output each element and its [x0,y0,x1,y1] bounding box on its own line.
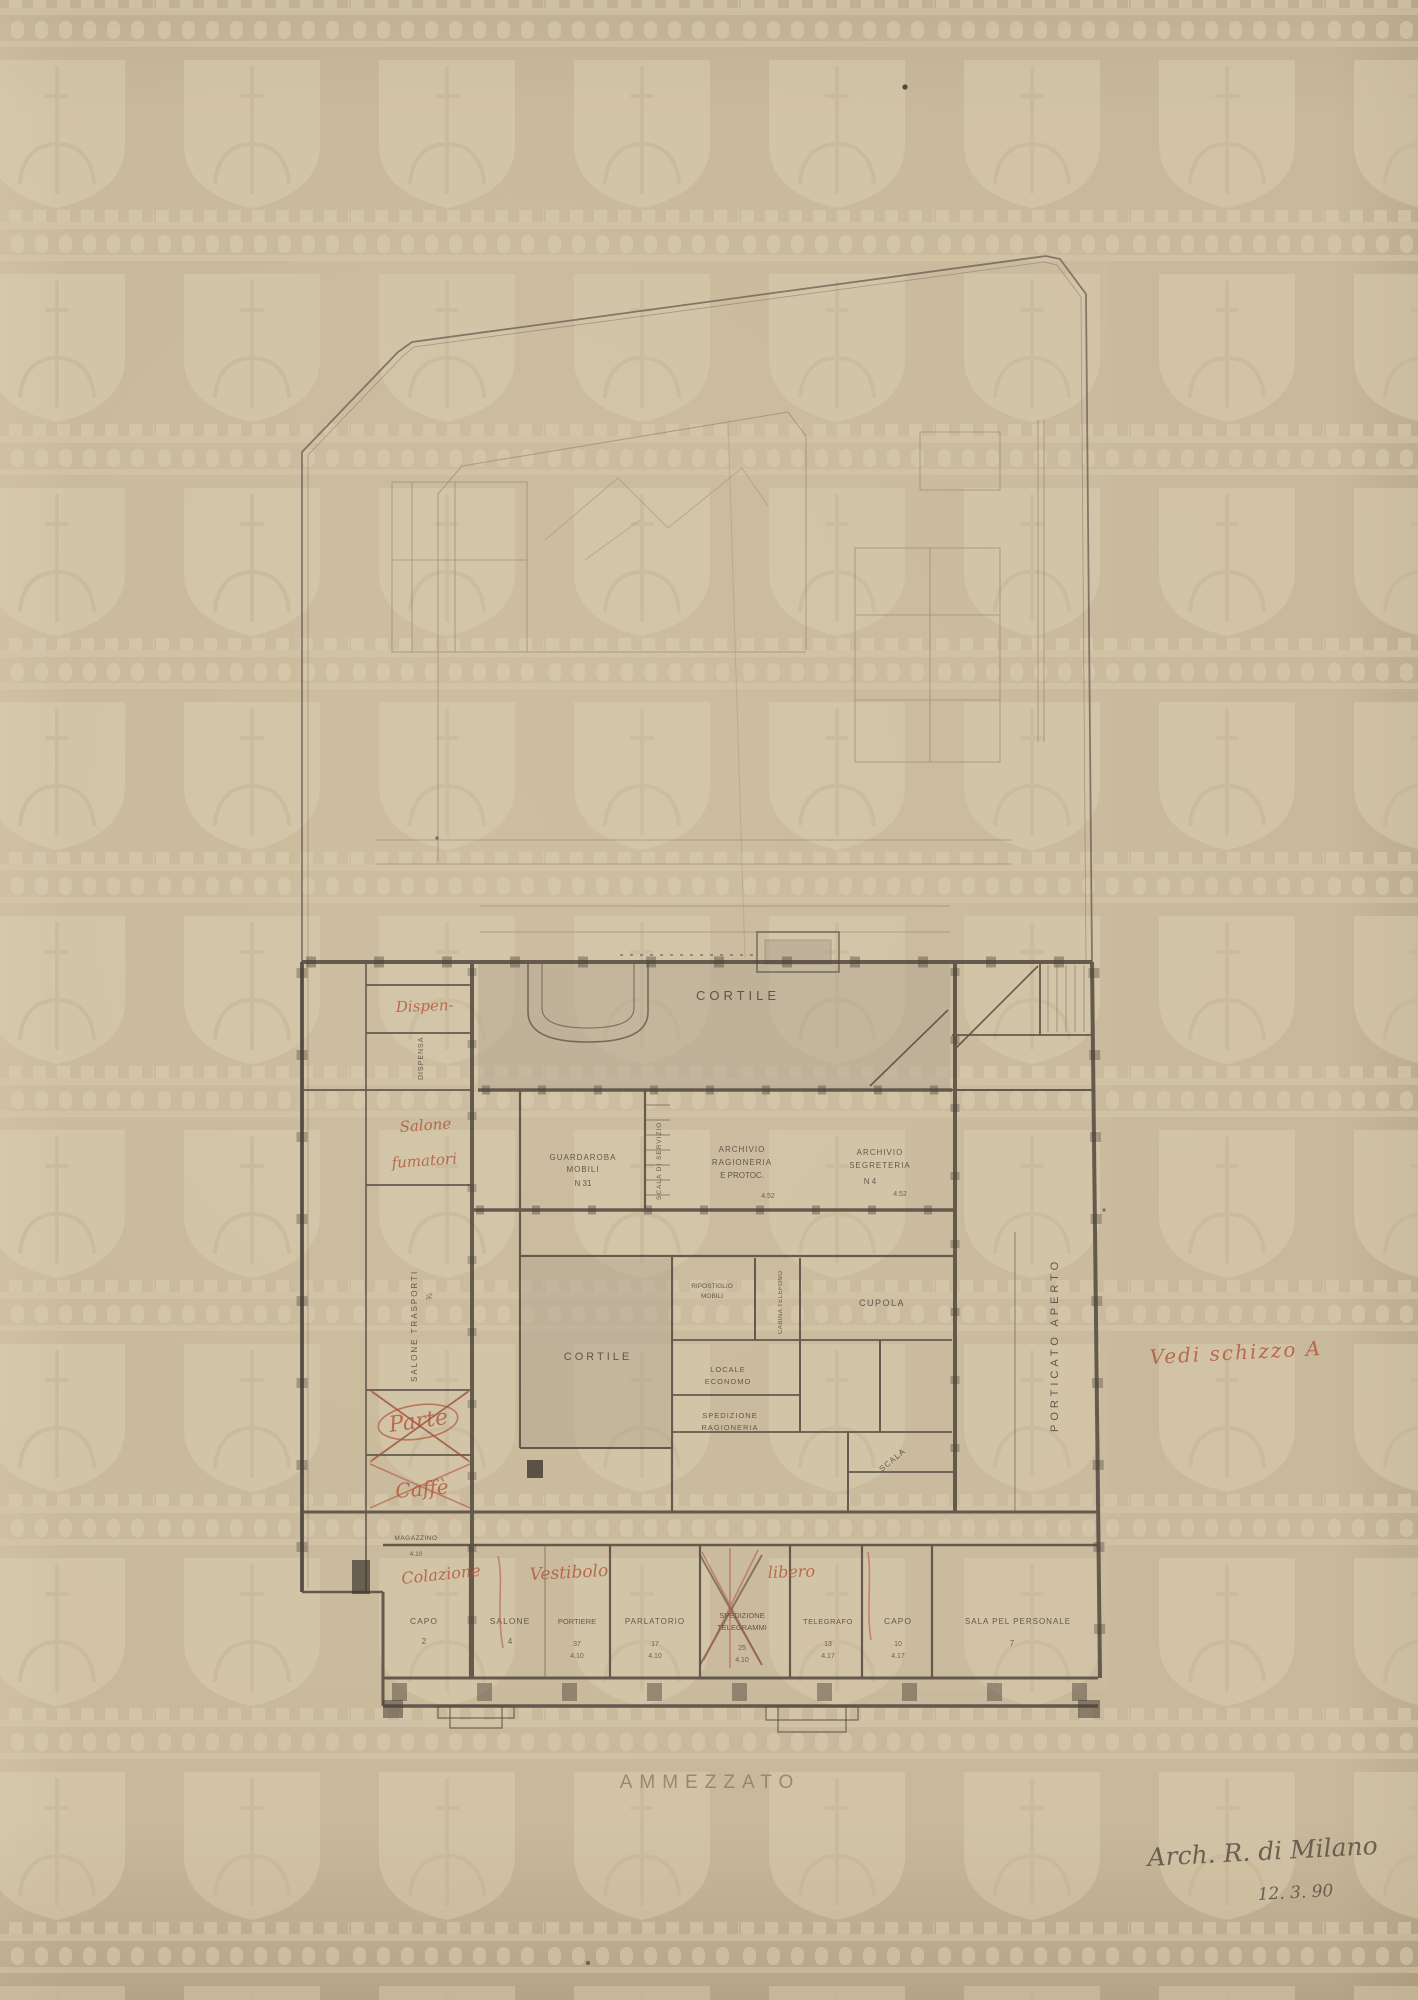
red-vestibolo: Vestibolo [529,1561,609,1585]
label-cupola: CUPOLA [859,1298,905,1308]
label-archivio-rag-1: ARCHIVIO [719,1145,766,1154]
label-salone: SALONE [490,1616,531,1626]
label-archivio-seg-3: N 4 [864,1177,877,1186]
num-portiere-1: 37 [573,1641,581,1648]
num-capo-dx-2: 4.17 [891,1653,905,1660]
num-spedizione-2: 4.10 [735,1657,749,1664]
signature-line2: 12. 3. 90 [1257,1881,1334,1905]
scanned-plan-page: CORTILE CORTILE DISPENSA SALONE TRASPORT… [0,0,1418,2000]
label-cortile-small: CORTILE [564,1351,632,1363]
label-parlatorio: PARLATORIO [625,1617,685,1626]
num-parlatorio-1: 17 [651,1641,659,1648]
label-capo-sx: CAPO [410,1616,438,1626]
num-portiere-2: 4.10 [570,1653,584,1660]
red-dispensa: Dispen- [395,996,454,1016]
label-rag-n: 4.52 [761,1193,775,1200]
label-archivio-rag-2: RAGIONERIA [712,1158,772,1167]
num-capo-sx: 2 [422,1637,427,1646]
num-sala: 7 [1010,1639,1015,1648]
sheet-title: AMMEZZATO [620,1772,801,1793]
label-spedizione-rag-1: SPEDIZIONE [702,1411,757,1420]
label-portiere: PORTIERE [558,1617,596,1626]
label-salone-trasporti: SALONE TRASPORTI [410,1270,419,1382]
label-dispensa: DISPENSA [418,1037,425,1080]
label-guardaroba-2: MOBILI [566,1165,599,1174]
plan-canvas: CORTILE CORTILE DISPENSA SALONE TRASPORT… [0,0,1418,2000]
red-libero: libero [767,1561,815,1582]
label-ripostiglio-1: RIPOSTIGLIO [691,1283,733,1290]
num-spedizione-1: 25 [738,1645,746,1652]
label-magazzino: MAGAZZINO [394,1535,437,1542]
label-capo-dx: CAPO [884,1616,912,1626]
label-guardaroba-3: N 31 [575,1179,592,1188]
label-economo-1: LOCALE [710,1365,746,1374]
label-guardaroba-1: GUARDAROBA [550,1153,617,1162]
num-capo-dx-1: 10 [894,1641,902,1648]
num-salone: 4 [508,1637,513,1646]
red-salone: Salone [399,1114,452,1136]
label-porticato: PORTICATO APERTO [1049,1258,1061,1432]
label-sala-personale: SALA PEL PERSONALE [965,1617,1071,1626]
label-cabina-telefono: CABINA TELEFONO [778,1271,784,1334]
label-spedizione-rag-2: RAGIONERIA [701,1423,758,1432]
num-telegrafo-2: 4.17 [821,1653,835,1660]
label-archivio-seg-2: SEGRETERIA [849,1161,911,1170]
label-magazzino-n: 4.10 [410,1551,423,1558]
label-telegrafo: TELEGRAFO [803,1617,853,1626]
num-telegrafo-1: 13 [824,1641,832,1648]
label-cortile-main: CORTILE [696,988,780,1003]
label-seg-n: 4.52 [893,1191,907,1198]
label-archivio-seg-1: ARCHIVIO [857,1148,904,1157]
num-parlatorio-2: 4.10 [648,1653,662,1660]
label-ripostiglio-2: MOBILI [701,1293,723,1300]
label-archivio-rag-3: E PROTOC. [720,1171,764,1180]
label-scala-servizio: SCALA DI SERVIZIO [656,1122,663,1200]
label-trasporti-n: ¾ [425,1293,434,1300]
label-economo-2: ECONOMO [705,1377,752,1386]
